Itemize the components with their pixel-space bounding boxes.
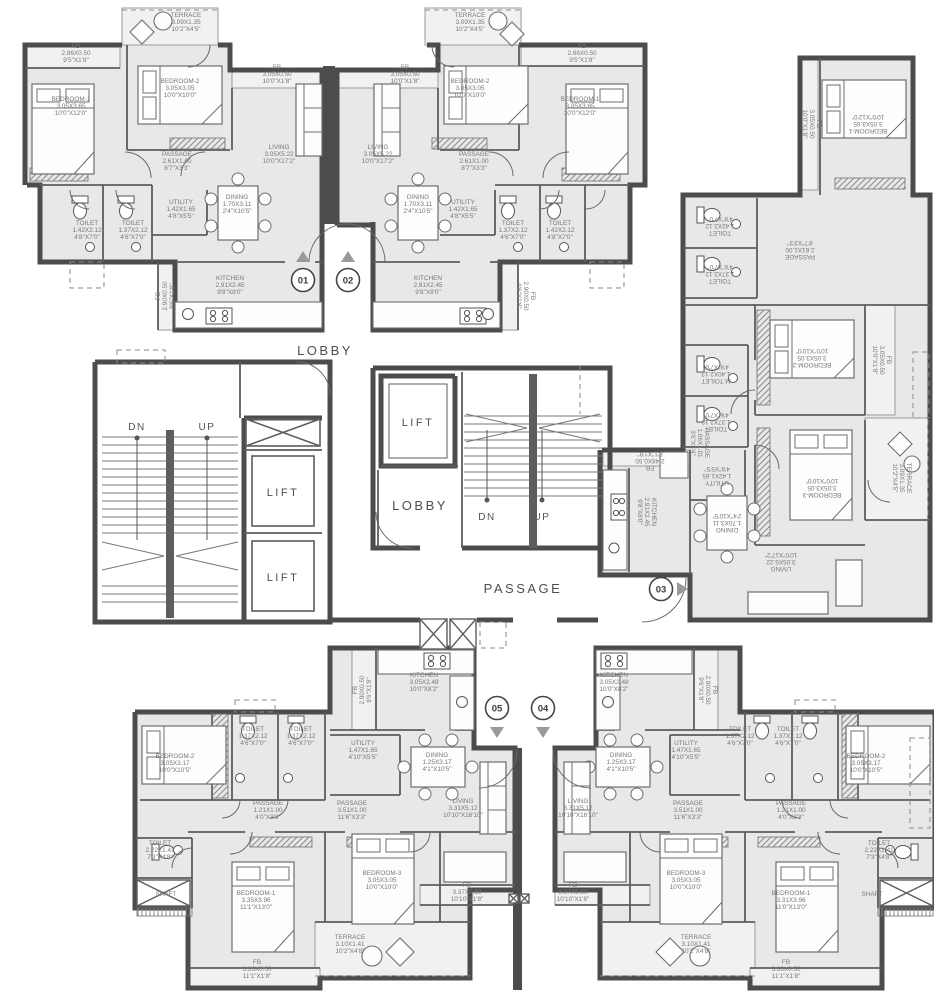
room-label-terrace-unit05: TERRACE3.10X1.4110'2"X4'8" <box>335 934 366 955</box>
stair-label-dn: DN <box>478 512 495 523</box>
room-label-passage-unit04: PASSAGE3.51X1.0011'6"X3'3" <box>673 800 703 821</box>
unit-marker-number-04: 04 <box>538 703 549 714</box>
room-label-fb-unit02: FB2.90X0.509'6"X1'8" <box>515 281 536 311</box>
room-label-toilet-unit05: TOILET2.22X1.417'3"X4'8" <box>145 840 175 861</box>
room-label-bedroom-2-unit02: BEDROOM-23.05X3.0510'0"X10'0" <box>451 78 490 99</box>
stair-core-left <box>102 430 238 618</box>
core-label-lobby: LOBBY <box>297 343 353 358</box>
room-label-toilet-unit02: TOILET1.37X2.124'6"X7'0" <box>498 220 528 241</box>
room-label-dining-unit01: DINING1.70X3.112'4"X10'5" <box>222 194 251 215</box>
room-label-kitchen-unit05: KITCHEN3.05X2.4810'0"X8'2" <box>409 672 439 693</box>
stair-label-dn: DN <box>128 422 145 433</box>
unit-entry-arrow-03 <box>677 582 688 596</box>
core-label-lobby: LOBBY <box>392 498 448 513</box>
room-label-fb-unit01: FB3.05X0.5010'0"X1'8" <box>262 64 292 85</box>
room-label-terrace-unit01: TERRACE3.09X1.3510'2"X4'5" <box>171 12 202 33</box>
floor-plan-drawing: TERRACE3.09X1.3510'2"X4'5"FB2.86X0.509'5… <box>0 0 934 995</box>
room-label-kitchen-unit03: KITCHEN2.91X2.459'8"X8'0" <box>636 497 657 527</box>
room-label-passage-unit04: PASSAGE1.21X1.004'0"X3'3" <box>776 800 806 821</box>
room-label-utility-unit03: UTILITY1.42X1.654'8"X5'5" <box>702 465 732 486</box>
room-label-passage-unit02: PASSAGE2.61X1.008'7"X3'3" <box>459 151 489 172</box>
room-label-bedroom-2-unit05: BEDROOM-23.05X3.1710'0"X10'5" <box>156 753 195 774</box>
room-label-terrace-unit02: TERRACE3.09X1.3510'2"X4'5" <box>455 12 486 33</box>
room-label-utility-unit01: UTILITY1.42X1.654'8"X5'5" <box>166 199 196 220</box>
room-label-toilet-unit04: TOILET1.37X2.124'6"X7'0" <box>773 726 803 747</box>
room-label-passage-unit03: PASSAGE1.06X1.013'6"X3'4" <box>689 428 710 458</box>
room-label-bedroom-3-unit05: BEDROOM-33.05X3.0510'0"X10'0" <box>363 870 402 891</box>
room-label-bedroom-1-unit04: BEDROOM-13.31X3.9611'0"X13'0" <box>772 890 811 911</box>
unit-marker-05: 05 <box>486 697 509 739</box>
room-label-dining-unit05: DINING1.25X3.174'1"X10'5" <box>422 752 452 773</box>
room-label-passage-unit03: PASSAGE2.61X1.008'7"X3'3" <box>785 239 815 260</box>
room-label-utility-unit05: UTILITY1.47X1.654'10"X5'5" <box>348 740 378 761</box>
room-label-m-toilet-unit03: M.TOILET1.40X2.134'8"X7'0" <box>701 363 731 384</box>
room-label-toilet-unit01: TOILET1.42X2.124'8"X7'0" <box>72 220 102 241</box>
room-label-toilet-unit02: TOILET1.42X2.124'8"X7'0" <box>545 220 575 241</box>
room-label-terrace-unit04: TERRACE3.10X1.4110'2"X4'8" <box>681 934 712 955</box>
floor-plan-page: TERRACE3.09X1.3510'2"X4'5"FB2.86X0.509'5… <box>0 0 934 995</box>
room-label-bedroom-3-unit03: BEDROOM-33.05X3.0510'0"X10'0" <box>802 477 841 498</box>
room-label-bedroom-1-unit03: BEDROOM-13.05X3.6510'0"X12'0" <box>848 113 887 134</box>
room-label-passage-unit05: PASSAGE1.21X1.004'0"X3'3" <box>253 800 283 821</box>
stair-label-up: UP <box>199 422 216 433</box>
room-label-shaft-unit04: SHAFT <box>862 891 883 898</box>
room-label-utility-unit04: UTILITY1.47X1.654'10"X5'5" <box>671 740 701 761</box>
room-label-dining-unit02: DINING1.70X3.112'4"X10'5" <box>403 194 432 215</box>
room-label-bedroom-1-unit05: BEDROOM-13.35X3.9611'1"X13'0" <box>237 890 276 911</box>
room-label-kitchen-unit01: KITCHEN2.91X2.459'8"X8'0" <box>215 275 245 296</box>
core-label-lift: LIFT <box>402 417 435 429</box>
room-label-kitchen-unit02: KITCHEN2.91X2.459'8"X8'0" <box>413 275 443 296</box>
room-label-toilet-unit04: TOILET1.37X2.124'6"X7'0" <box>725 726 755 747</box>
room-label-bedroom-2-unit04: BEDROOM-23.05X3.1710'0"X10'5" <box>847 753 886 774</box>
unit-marker-04: 04 <box>532 697 555 739</box>
unit-marker-number-02: 02 <box>343 275 354 286</box>
room-label-passage-unit01: PASSAGE2.61X1.008'7"X3'3" <box>162 151 192 172</box>
room-label-bedroom-3-unit04: BEDROOM-33.05X3.0510'0"X10'0" <box>667 870 706 891</box>
room-label-toilet-unit03: TOILET1.42X2.124'8"X7'0" <box>705 215 735 236</box>
room-label-dining-unit03: DINING1.70X3.112'4"X10'5" <box>712 512 741 533</box>
room-label-bedroom-1-unit01: BEDROOM-13.05X3.6510'0"X12'0" <box>52 96 91 117</box>
unit-marker-number-05: 05 <box>492 703 503 714</box>
room-label-bedroom-1-unit02: BEDROOM-13.05X3.6510'0"X12'0" <box>561 96 600 117</box>
room-label-kitchen-unit04: KITCHEN3.05X2.4810'0"X8'2" <box>599 672 629 693</box>
core-label-passage: PASSAGE <box>484 581 563 596</box>
unit-entry-arrow-02 <box>341 251 355 262</box>
room-label-dining-unit04: DINING1.25X3.174'1"X10'5" <box>606 752 636 773</box>
unit-marker-number-03: 03 <box>656 584 667 595</box>
unit-marker-02: 02 <box>337 251 360 292</box>
room-label-toilet-unit05: TOILET1.37X2.124'6"X7'0" <box>238 726 268 747</box>
room-label-toilet-unit03: TOILET1.37X2.124'6"X7'0" <box>705 263 735 284</box>
unit-entry-arrow-05 <box>490 727 504 738</box>
room-label-bedroom-2-unit01: BEDROOM-23.05X3.0510'0"X10'0" <box>161 78 200 99</box>
unit-marker-number-01: 01 <box>298 275 309 286</box>
room-label-passage-unit05: PASSAGE3.51X1.0011'6"X3'3" <box>337 800 367 821</box>
room-label-toilet-unit05: TOILET1.37X2.124'6"X7'0" <box>286 726 316 747</box>
room-label-toilet-unit04: TOILET2.22X1.417'3"X4'8" <box>864 840 894 861</box>
unit-entry-arrow-04 <box>536 727 550 738</box>
room-label-shaft-unit05: SHAFT <box>156 891 177 898</box>
room-label-bedroom-2-unit03: BEDROOM-23.05X3.0510'0"X10'0" <box>792 347 831 368</box>
core-label-lift: LIFT <box>267 487 300 499</box>
stair-label-up: UP <box>534 512 551 523</box>
room-label-toilet-unit01: TOILET1.37X2.124'6"X7'0" <box>118 220 148 241</box>
room-label-terrace-unit03: TERRACE3.09X1.3510'2"X4'5" <box>891 463 912 494</box>
core-label-lift: LIFT <box>267 572 300 584</box>
room-label-utility-unit02: UTILITY1.42X1.654'8"X5'5" <box>448 199 478 220</box>
room-label-fb-unit02: FB3.05X0.5010'0"X1'8" <box>390 64 420 85</box>
